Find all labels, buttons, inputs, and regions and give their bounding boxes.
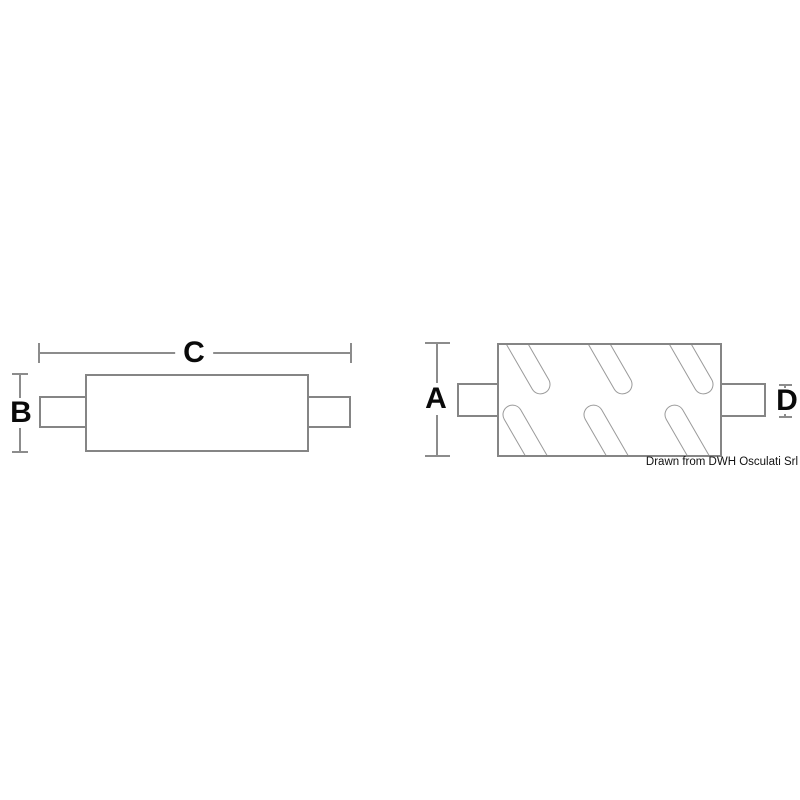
diagonal-slot-bottom-2 — [580, 401, 634, 457]
technical-drawing-canvas: C B A D Dra — [0, 0, 800, 800]
diagonal-slot-bottom-1 — [499, 401, 553, 457]
side-view-left-pipe — [39, 396, 87, 428]
dim-c-label: C — [175, 340, 213, 366]
dim-a-bottom-tick — [425, 455, 450, 457]
end-view-body — [497, 343, 722, 457]
diagonal-slot-top-2 — [582, 343, 636, 398]
diagonal-slot-bottom-3 — [661, 401, 715, 457]
credit-text: Drawn from DWH Osculati Srl — [646, 456, 798, 469]
side-view-body — [85, 374, 309, 452]
diagonal-slot-top-3 — [663, 343, 717, 398]
dim-b-top-tick — [12, 373, 28, 375]
end-view-right-pipe — [720, 383, 766, 417]
side-view-right-pipe — [307, 396, 351, 428]
diagonal-slot-top-1 — [500, 343, 554, 398]
dim-c-right-tick — [350, 343, 352, 363]
dim-d-label: D — [775, 388, 799, 414]
dim-a-top-tick — [425, 342, 450, 344]
dim-c-left-tick — [38, 343, 40, 363]
dim-b-bottom-tick — [12, 451, 28, 453]
end-view-left-pipe — [457, 383, 499, 417]
dim-b-label: B — [9, 398, 33, 428]
dim-a-label: A — [424, 383, 448, 415]
